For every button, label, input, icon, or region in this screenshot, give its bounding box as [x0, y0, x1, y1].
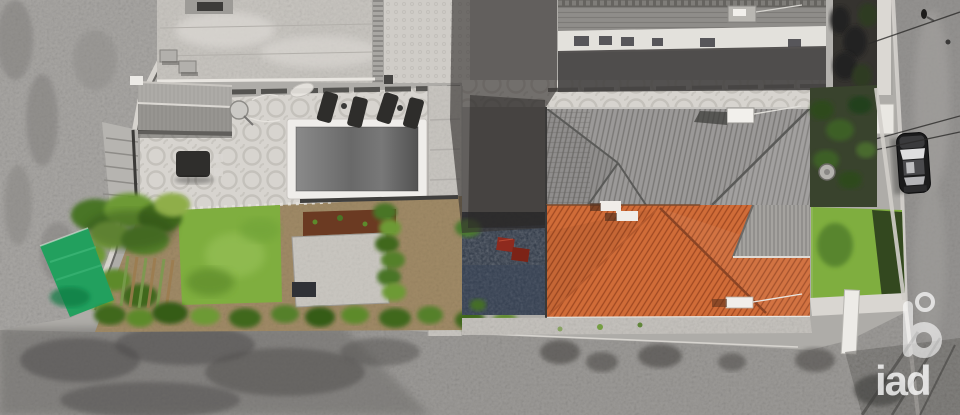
pool-water [296, 127, 418, 191]
iad-wordmark: iad [875, 357, 930, 404]
roof-vent [616, 211, 638, 221]
window [700, 38, 715, 47]
patio-table [176, 151, 210, 177]
roof-vent [726, 297, 753, 308]
ac-unit [160, 50, 177, 62]
ac-unit [179, 61, 196, 73]
swimming-pool [287, 119, 427, 199]
aerial-photo-canvas: iad [0, 0, 960, 415]
window [574, 36, 589, 46]
wall-pillar [841, 290, 859, 355]
aerial-photo: iad [0, 0, 960, 415]
window [788, 39, 801, 47]
windshield [900, 148, 926, 160]
upper-terrace [157, 0, 470, 84]
dark-panel [292, 282, 316, 297]
window [621, 37, 634, 46]
patio-chair [214, 168, 223, 176]
pedestrian [921, 9, 927, 19]
window [599, 36, 612, 45]
red-garden-furniture [511, 247, 530, 262]
street-wall [877, 0, 892, 95]
roof-vent [600, 201, 621, 211]
window [652, 38, 663, 46]
patio-chair [214, 154, 223, 162]
building-shadow [450, 0, 557, 233]
parked-car [890, 132, 931, 194]
neighbor-building [558, 0, 833, 92]
roof-chimney [727, 108, 754, 123]
